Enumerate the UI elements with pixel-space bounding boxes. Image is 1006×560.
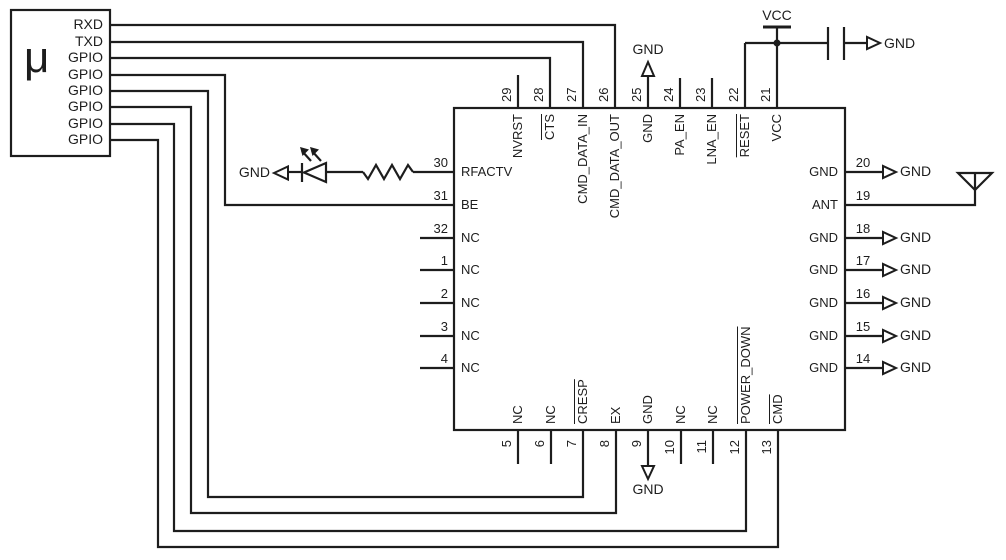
gnd-net-label: GND	[623, 42, 673, 57]
pin-number-8: 8	[597, 440, 612, 447]
vcc-net-label: VCC	[752, 8, 802, 23]
pin-label-nc-32: NC	[461, 230, 480, 245]
pin-label-gnd-14: GND	[768, 360, 838, 375]
pin-number-27: 27	[564, 88, 579, 102]
ground-arrow-icon	[883, 362, 896, 374]
pin-label-be: BE	[461, 197, 478, 212]
junction-dot	[774, 40, 781, 47]
pin-number-32: 32	[402, 221, 448, 236]
gnd-net-label: GND	[900, 360, 931, 375]
pin-label-nvrst: NVRST	[510, 114, 525, 158]
pin-label-ant: ANT	[768, 197, 838, 212]
ground-arrow-icon	[642, 62, 654, 76]
pin-label-cmd: CMD	[770, 394, 785, 424]
gnd-net-label: GND	[623, 482, 673, 497]
pin-number-16: 16	[848, 286, 878, 301]
pin-label-reset: RESET	[737, 114, 752, 157]
gnd-net-label: GND	[900, 164, 931, 179]
ground-arrow-icon	[883, 166, 896, 178]
wires-layer	[0, 0, 1006, 560]
gnd-net-label: GND	[900, 262, 931, 277]
pin-number-19: 19	[848, 188, 878, 203]
gnd-net-label: GND	[900, 230, 931, 245]
pin-number-13: 13	[759, 440, 774, 454]
pin-label-nc-11: NC	[705, 405, 720, 424]
pin-label-cts: CTS	[542, 114, 557, 140]
ground-arrow-icon	[642, 466, 654, 479]
pin-label-lna-en: LNA_EN	[704, 114, 719, 165]
led-icon	[304, 163, 326, 182]
pin-label-gnd-15: GND	[768, 328, 838, 343]
micro-pin-gpio: GPIO	[35, 132, 103, 147]
pin-number-4: 4	[402, 351, 448, 366]
pin-number-20: 20	[848, 155, 878, 170]
pin-label-cresp: CRESP	[575, 379, 590, 424]
ground-arrow-icon	[883, 232, 896, 244]
micro-pin-gpio: GPIO	[35, 83, 103, 98]
ground-arrow-icon	[883, 264, 896, 276]
pin-number-6: 6	[532, 440, 547, 447]
gnd-net-label: GND	[900, 328, 931, 343]
wire-gpio-to-be	[110, 75, 454, 205]
pin-label-nc-4: NC	[461, 360, 480, 375]
pin-number-26: 26	[596, 88, 611, 102]
pin-label-pa-en: PA_EN	[672, 114, 687, 156]
pin-number-2: 2	[402, 286, 448, 301]
pin-label-nc-10: NC	[673, 405, 688, 424]
pin-label-nc-5: NC	[510, 405, 525, 424]
pin-number-12: 12	[727, 440, 742, 454]
pin-label-nc-1: NC	[461, 262, 480, 277]
capacitor-icon	[828, 27, 844, 60]
micro-pin-gpio: GPIO	[35, 116, 103, 131]
pin-number-10: 10	[662, 440, 677, 454]
pin-number-17: 17	[848, 253, 878, 268]
ground-arrow-icon	[883, 297, 896, 309]
pin-label-gnd-17: GND	[768, 262, 838, 277]
pin-number-11: 11	[694, 440, 709, 454]
pin-number-22: 22	[726, 88, 741, 102]
pin-number-9: 9	[629, 440, 644, 447]
pin-label-nc-3: NC	[461, 328, 480, 343]
pin-label-rfactv: RFACTV	[461, 164, 512, 179]
ground-arrow-icon	[883, 330, 896, 342]
pin-label-vcc-21: VCC	[769, 114, 784, 141]
pin-number-21: 21	[758, 88, 773, 102]
pin-label-gnd-9: GND	[640, 395, 655, 424]
micro-pin-gpio: GPIO	[35, 67, 103, 82]
micro-pin-gpio: GPIO	[35, 99, 103, 114]
pin-label-ex: EX	[608, 407, 623, 424]
wire-gpio-to-ex	[110, 107, 616, 513]
pin-number-3: 3	[402, 319, 448, 334]
pin-number-30: 30	[402, 155, 448, 170]
micro-pin-rxd: RXD	[35, 17, 103, 32]
pin-number-1: 1	[402, 253, 448, 268]
pin-label-gnd-20: GND	[768, 164, 838, 179]
pin-number-5: 5	[499, 440, 514, 447]
pin-number-23: 23	[693, 88, 708, 102]
schematic-canvas: μ RXD TXD GPIO GPIO GPIO GPIO GPIO GPIO …	[0, 0, 1006, 560]
pin-label-gnd-25: GND	[640, 114, 655, 143]
pin-number-29: 29	[499, 88, 514, 102]
gnd-net-label: GND	[228, 165, 270, 180]
gnd-net-label: GND	[900, 295, 931, 310]
gnd-net-label: GND	[884, 36, 915, 51]
pin-number-7: 7	[564, 440, 579, 447]
pin-number-15: 15	[848, 319, 878, 334]
pin-number-24: 24	[661, 88, 676, 102]
pin-label-gnd-18: GND	[768, 230, 838, 245]
pin-label-nc-6: NC	[543, 405, 558, 424]
pin-number-28: 28	[531, 88, 546, 102]
pin-label-cmd-data-in: CMD_DATA_IN	[575, 114, 590, 204]
pin-label-gnd-16: GND	[768, 295, 838, 310]
pin-number-18: 18	[848, 221, 878, 236]
wire-gpio-to-cts	[110, 58, 550, 108]
ground-arrow-icon	[867, 37, 880, 49]
pin-number-31: 31	[402, 188, 448, 203]
pin-label-cmd-data-out: CMD_DATA_OUT	[607, 114, 622, 218]
micro-pin-gpio: GPIO	[35, 50, 103, 65]
ground-arrow-icon	[274, 167, 288, 180]
pin-label-nc-2: NC	[461, 295, 480, 310]
micro-pin-txd: TXD	[35, 34, 103, 49]
pin-label-power-down: POWER_DOWN	[738, 327, 753, 425]
pin-number-25: 25	[629, 88, 644, 102]
pin-number-14: 14	[848, 351, 878, 366]
